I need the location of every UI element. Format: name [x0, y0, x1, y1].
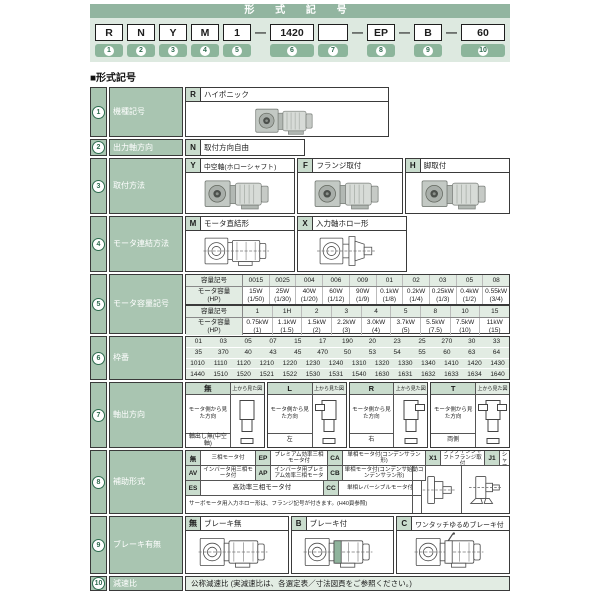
frame-number-cell: 1220 [278, 360, 301, 367]
model-code-band: R 1 N 2 Y 3 M 4 1 5 — 1420 6 [90, 18, 510, 62]
code-badge-6: 6 [270, 44, 314, 57]
code-box-2: N [127, 24, 155, 41]
frame-number-cell: 1230 [301, 360, 324, 367]
frame-number-cell: 45 [285, 349, 310, 356]
code-chip: B [292, 517, 307, 530]
gearmotor-drawing-icon [186, 531, 288, 573]
gearmotor-photo-icon [186, 173, 294, 213]
plug-in-shaft-drawings [412, 466, 509, 513]
capacity-symbol-cell: 15 [480, 306, 509, 317]
code-chip: Y [186, 159, 201, 172]
plug-in-foot-drawing-icon [462, 466, 510, 513]
row-label: 取付方法 [109, 158, 183, 214]
code-item-8: EP 8 [367, 24, 395, 57]
code-item-5: 1 5 [223, 24, 251, 57]
capacity-value-cell: 0.75kW(1) [243, 318, 273, 335]
capacity-value-cell: 11kW(15) [480, 318, 509, 335]
row-label: 枠番 [109, 336, 183, 380]
frame-number-row: 3537040434547050535455606364 [186, 348, 509, 359]
frame-number-cell: 1210 [255, 360, 278, 367]
row-mounting-method: 3 取付方法 Y 中空軸(ホローシャフト) F フランジ取付 [90, 158, 510, 214]
code-chip: 無 [186, 517, 201, 530]
axis-option-both: T 上から見た図 モータ側から見た方向 両側 [430, 382, 510, 448]
capacity-value-cell: 1.5kW(2) [302, 318, 332, 335]
capacity-value-cell: 0.4kW(1/2) [457, 287, 484, 304]
code-chip: C [397, 517, 412, 530]
frame-number-cell: 1310 [348, 360, 371, 367]
capacity-symbol-cell: 1H [273, 306, 303, 317]
row-number-cell: 4 [90, 216, 107, 272]
frame-number-cell: 1520 [232, 371, 255, 378]
code-item-4: M 4 [191, 24, 219, 57]
top-view-diagram-icon [312, 395, 346, 447]
capacity-table: 容量記号 001500250040060090102030508 モータ容量(H… [186, 275, 509, 335]
frame-number-cell: 1640 [486, 371, 509, 378]
code-badge-1: 1 [95, 44, 123, 57]
brake-gearmotor-drawing-icon [292, 531, 394, 573]
capacity-value-cell: 2.2kW(3) [332, 318, 362, 335]
code-item-9: B 9 [414, 24, 442, 57]
row-number-cell: 3 [90, 158, 107, 214]
capacity-symbol-cell: 10 [451, 306, 481, 317]
frame-number-cell: 64 [484, 349, 509, 356]
frame-number-cell: 30 [459, 338, 484, 345]
code-badge-5: 5 [223, 44, 251, 57]
row-number-cell: 10 [90, 576, 107, 591]
frame-number-cell: 01 [186, 338, 211, 345]
capacity-value-cell: 15W(1/50) [243, 287, 270, 304]
capacity-symbol-cell: 08 [483, 275, 509, 286]
release-brake-gearmotor-drawing-icon [397, 531, 509, 573]
row-motor-connection: 4 モータ連結方法 M モータ直結形 X 入力軸ホロー形 [90, 216, 510, 272]
frame-number-cell: 53 [360, 349, 385, 356]
frame-number-cell: 1530 [301, 371, 324, 378]
code-desc: 取付方向自由 [201, 140, 252, 155]
frame-number-cell: 1630 [371, 371, 394, 378]
row-label: 出力軸方向 [109, 139, 183, 156]
code-chip: M [186, 217, 201, 230]
frame-number-cell: 1110 [209, 360, 232, 367]
code-chip: F [298, 159, 313, 172]
capacity-value-row: 0.75kW(1) 1.1kW(1.5) 1.5kW(2) 2.2kW(3) 3… [243, 318, 509, 335]
frame-number-cell: 54 [385, 349, 410, 356]
row-auxiliary-type: 8 補助形式 無 三相モータ付 EP プレミアム効率三相モータ付 CA 単相モー… [90, 450, 510, 514]
gearmotor-drawing-icon [186, 231, 294, 271]
frame-number-cell: 03 [211, 338, 236, 345]
frame-number-cell: 1430 [486, 360, 509, 367]
row-number-cell: 1 [90, 87, 107, 137]
frame-number-cell: 1631 [394, 371, 417, 378]
code-dash: — [399, 27, 410, 39]
code-box-10: 60 [461, 24, 505, 41]
code-box-5: 1 [223, 24, 251, 41]
capacity-value-cell: 0.2kW(1/4) [403, 287, 430, 304]
page-title: 形 式 記 号 [90, 4, 510, 18]
row-number-cell: 2 [90, 139, 107, 156]
capacity-value-cell: 5.5kW(7.5) [421, 318, 451, 335]
frame-number-cell: 1410 [440, 360, 463, 367]
frame-number-cell: 470 [310, 349, 335, 356]
capacity-value-row: 15W(1/50) 25W(1/30) 40W(1/20) 60W(1/12) … [243, 287, 509, 304]
frame-number-cell: 33 [484, 338, 509, 345]
code-desc: モータ直結形 [201, 217, 252, 230]
frame-number-cell: 1634 [463, 371, 486, 378]
capacity-value-cell: 3.7kW(5) [391, 318, 421, 335]
code-item-6: 1420 6 [270, 24, 314, 57]
top-view-diagram-icon [393, 395, 427, 447]
frame-number-cell: 1440 [186, 371, 209, 378]
row-brake: 9 ブレーキ有無 無 ブレーキ無 B ブレーキ付 [90, 516, 510, 574]
catalog-page: 形 式 記 号 R 1 N 2 Y 3 M 4 1 5 — [0, 0, 600, 600]
frame-number-cell: 1531 [324, 371, 347, 378]
frame-number-cell: 1510 [209, 371, 232, 378]
hollow-input-drawing-icon [298, 231, 406, 271]
row-number-cell: 5 [90, 274, 107, 334]
capacity-symbol-cell: 004 [296, 275, 323, 286]
row-frame-number: 6 枠番 0103050715171902023252703033 353704… [90, 336, 510, 380]
frame-number-cell: 1633 [440, 371, 463, 378]
code-box-9: B [414, 24, 442, 41]
code-item-10: 60 10 [461, 24, 505, 57]
auxiliary-table: 無 三相モータ付 EP プレミアム効率三相モータ付 CA 単相モータ付(コンデン… [185, 450, 510, 514]
frame-number-cell: 23 [385, 338, 410, 345]
frame-number-cell: 1340 [417, 360, 440, 367]
code-box-6: 1420 [270, 24, 314, 41]
capacity-symbol-cell: 5 [391, 306, 421, 317]
code-box-7 [318, 24, 348, 41]
code-badge-3: 3 [159, 44, 187, 57]
capacity-value-cell: 0.55kW(3/4) [483, 287, 509, 304]
row-shaft-output-direction: 7 軸出方向 無 上から見た図 モータ側から見た方向 軸出し無(中空軸) L 上… [90, 382, 510, 448]
frame-number-cell: 63 [459, 349, 484, 356]
frame-number-cell: 40 [236, 349, 261, 356]
code-desc: ワンタッチゆるめブレーキ付 [412, 517, 506, 530]
frame-number-cell: 1320 [371, 360, 394, 367]
frame-number-cell: 190 [335, 338, 360, 345]
code-desc: 入力軸ホロー形 [313, 217, 372, 230]
frame-number-cell: 35 [186, 349, 211, 356]
frame-number-cell: 1010 [186, 360, 209, 367]
code-item-7: 7 [318, 24, 348, 57]
frame-number-cell: 1420 [463, 360, 486, 367]
axis-option-right: R 上から見た図 モータ側から見た方向 右 [349, 382, 429, 448]
code-chip: R [186, 88, 201, 101]
frame-number-cell: 50 [335, 349, 360, 356]
capacity-value-cell: 25W(1/30) [270, 287, 297, 304]
code-box-3: Y [159, 24, 187, 41]
code-desc: ハイポニック [201, 88, 252, 101]
frame-number-cell: 55 [410, 349, 435, 356]
capacity-header: モータ容量(HP) [186, 287, 243, 304]
capacity-value-cell: 40W(1/20) [296, 287, 323, 304]
row-reduction-ratio: 10 減速比 公称減速比 (実減速比は、各選定表／寸法図頁をご参照ください。) [90, 576, 510, 591]
auxiliary-note: サーボモータ用入力ホロー形は、フランジ記号が付きます。(H40頁参照) [186, 496, 422, 513]
axis-option-none: 無 上から見た図 モータ側から見た方向 軸出し無(中空軸) [185, 382, 265, 448]
gearmotor-photo-icon [406, 173, 509, 213]
frame-number-cell: 20 [360, 338, 385, 345]
frame-number-cell: 25 [410, 338, 435, 345]
frame-number-row: 1010111011201210122012301240131013201330… [186, 359, 509, 370]
code-desc: ブレーキ付 [307, 517, 351, 530]
row-label: ブレーキ有無 [109, 516, 183, 574]
reduction-ratio-desc: 公称減速比 (実減速比は、各選定表／寸法図頁をご参照ください。) [185, 576, 510, 591]
row-number-cell: 7 [90, 382, 107, 448]
frame-number-cell: 1632 [417, 371, 440, 378]
capacity-value-cell: 3.0kW(4) [362, 318, 392, 335]
capacity-value-cell: 7.5kW(10) [451, 318, 481, 335]
capacity-symbol-cell: 05 [457, 275, 484, 286]
capacity-value-cell: 0.25kW(1/3) [430, 287, 457, 304]
capacity-symbol-row: 11H234581015 [243, 306, 509, 317]
axis-option-left: L 上から見た図 モータ側から見た方向 左 [267, 382, 347, 448]
row-number-cell: 6 [90, 336, 107, 380]
capacity-symbol-cell: 03 [430, 275, 457, 286]
code-dash: — [446, 27, 457, 39]
row-motor-capacity: 5 モータ容量記号 容量記号 0015002500400600901020305… [90, 274, 510, 334]
frame-number-cell: 05 [236, 338, 261, 345]
row-model-type: 1 機種記号 R ハイポニック [90, 87, 510, 137]
code-chip: H [406, 159, 421, 172]
code-chip: N [186, 140, 201, 155]
capacity-symbol-cell: 8 [421, 306, 451, 317]
frame-number-cell: 370 [211, 349, 236, 356]
code-badge-9: 9 [414, 44, 442, 57]
frame-number-cell: 43 [261, 349, 286, 356]
code-desc: 中空軸(ホローシャフト) [201, 159, 279, 172]
row-output-shaft-direction: 2 出力軸方向 N 取付方向自由 [90, 139, 510, 156]
frame-number-cell: 1240 [324, 360, 347, 367]
capacity-symbol-row: 001500250040060090102030508 [243, 275, 509, 286]
code-item-3: Y 3 [159, 24, 187, 57]
capacity-symbol-cell: 2 [302, 306, 332, 317]
frame-number-cell: 1540 [348, 371, 371, 378]
code-dash: — [352, 27, 363, 39]
frame-number-cell: 270 [434, 338, 459, 345]
row-label: 軸出方向 [109, 382, 183, 448]
frame-number-cell: 15 [285, 338, 310, 345]
frame-number-cell: 60 [434, 349, 459, 356]
code-badge-10: 10 [461, 44, 505, 57]
frame-number-cell: 17 [310, 338, 335, 345]
capacity-symbol-cell: 009 [350, 275, 377, 286]
capacity-header: モータ容量(HP) [186, 318, 243, 335]
capacity-value-cell: 90W(1/9) [350, 287, 377, 304]
code-desc: 脚取付 [421, 159, 450, 172]
frame-number-row: 1440151015201521152215301531154016301631… [186, 369, 509, 379]
code-badge-2: 2 [127, 44, 155, 57]
capacity-header: 容量記号 [186, 306, 243, 317]
code-badge-4: 4 [191, 44, 219, 57]
gearmotor-photo-icon [298, 173, 401, 213]
row-label: モータ容量記号 [109, 274, 183, 334]
code-badge-7: 7 [318, 44, 348, 57]
code-badge-8: 8 [367, 44, 395, 57]
top-view-diagram-icon [475, 395, 509, 447]
code-desc: フランジ取付 [313, 159, 364, 172]
capacity-symbol-cell: 0025 [270, 275, 297, 286]
capacity-symbol-cell: 4 [362, 306, 392, 317]
code-item-2: N 2 [127, 24, 155, 57]
frame-number-cell: 1522 [278, 371, 301, 378]
plug-in-flange-drawing-icon [413, 466, 462, 513]
section-title: ■形式記号 [90, 69, 510, 84]
frame-number-row: 0103050715171902023252703033 [186, 337, 509, 348]
row-number-cell: 8 [90, 450, 107, 514]
capacity-value-cell: 0.1kW(1/8) [377, 287, 404, 304]
row-label: 減速比 [109, 576, 183, 591]
frame-number-cell: 1330 [394, 360, 417, 367]
row-label: 機種記号 [109, 87, 183, 137]
code-box-8: EP [367, 24, 395, 41]
code-chip: X [298, 217, 313, 230]
code-desc: ブレーキ無 [201, 517, 245, 530]
code-item-1: R 1 [95, 24, 123, 57]
row-label: モータ連結方法 [109, 216, 183, 272]
capacity-symbol-cell: 0015 [243, 275, 270, 286]
frame-number-cell: 1120 [232, 360, 255, 367]
code-dash: — [255, 27, 266, 39]
capacity-symbol-cell: 1 [243, 306, 273, 317]
frame-number-cell: 1521 [255, 371, 278, 378]
frame-number-table: 0103050715171902023252703033 35370404345… [186, 337, 509, 379]
capacity-value-cell: 60W(1/12) [323, 287, 350, 304]
frame-number-cell: 07 [261, 338, 286, 345]
capacity-symbol-cell: 006 [323, 275, 350, 286]
capacity-symbol-cell: 3 [332, 306, 362, 317]
row-label: 補助形式 [109, 450, 183, 514]
capacity-symbol-cell: 01 [377, 275, 404, 286]
capacity-value-cell: 1.1kW(1.5) [273, 318, 303, 335]
code-box-4: M [191, 24, 219, 41]
top-view-diagram-icon [230, 395, 264, 447]
capacity-symbol-cell: 02 [403, 275, 430, 286]
code-box-1: R [95, 24, 123, 41]
capacity-header: 容量記号 [186, 275, 243, 286]
row-number-cell: 9 [90, 516, 107, 574]
gearmotor-photo-icon [186, 102, 388, 138]
